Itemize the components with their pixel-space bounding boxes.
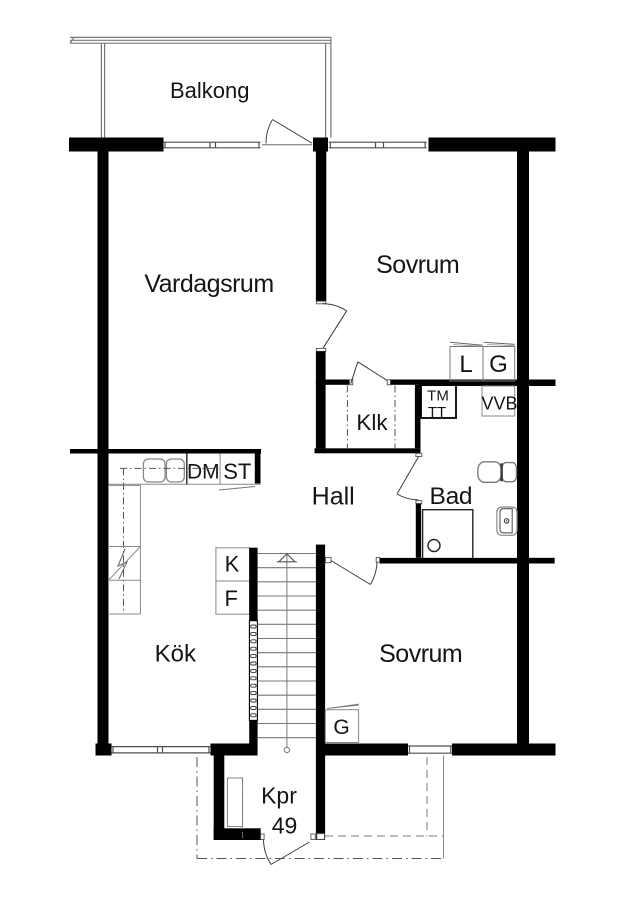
svg-text:G: G (489, 351, 508, 378)
svg-text:G: G (333, 716, 349, 739)
svg-text:TM: TM (427, 388, 449, 405)
svg-text:Bad: Bad (430, 483, 473, 510)
svg-text:Balkong: Balkong (170, 78, 250, 103)
svg-text:F: F (224, 586, 237, 611)
svg-text:VVB: VVB (481, 394, 517, 414)
svg-text:TT: TT (428, 404, 446, 421)
svg-text:K: K (225, 552, 240, 577)
svg-text:Kpr: Kpr (261, 783, 297, 809)
svg-text:Sovrum: Sovrum (376, 251, 459, 279)
svg-text:DM: DM (187, 461, 220, 484)
svg-text:Hall: Hall (312, 483, 355, 511)
svg-text:Kök: Kök (155, 641, 197, 668)
svg-text:49: 49 (272, 813, 298, 839)
svg-text:Vardagsrum: Vardagsrum (144, 270, 273, 298)
svg-text:Sovrum: Sovrum (379, 640, 462, 668)
svg-text:L: L (459, 351, 472, 378)
svg-text:Klk: Klk (356, 410, 388, 435)
svg-text:ST: ST (223, 459, 251, 484)
